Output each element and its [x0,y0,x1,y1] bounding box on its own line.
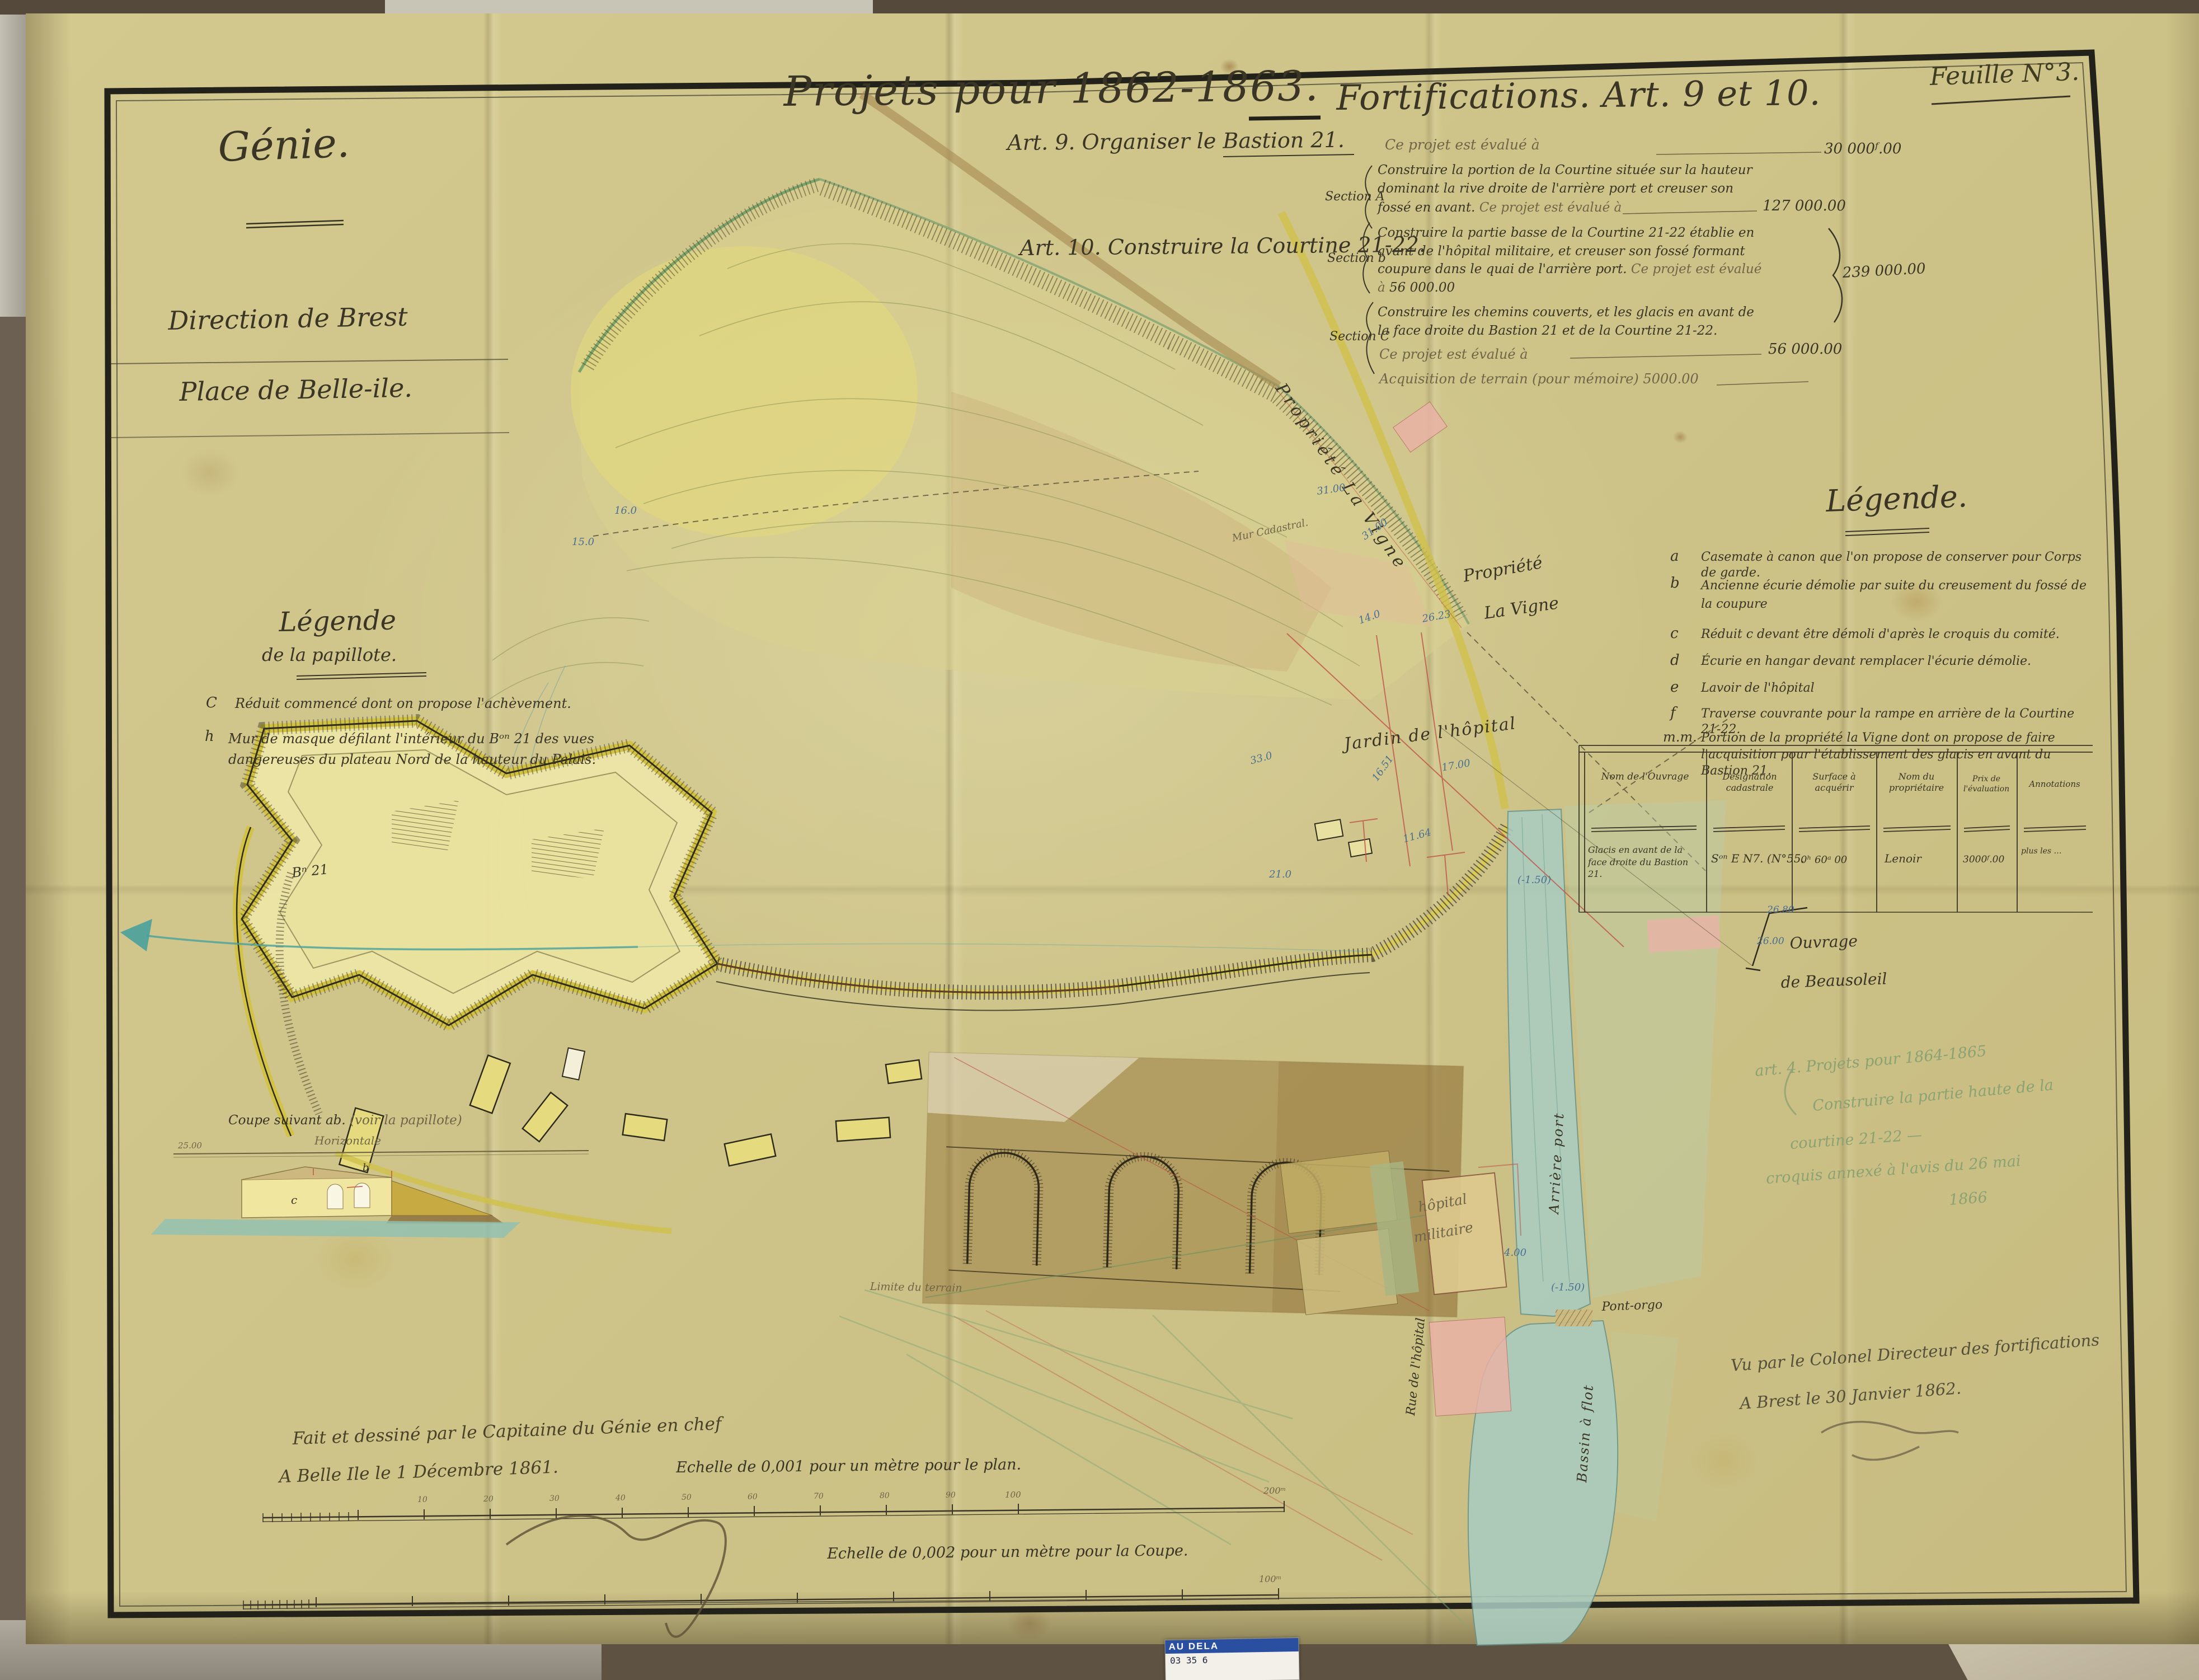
section-c-eval: Ce projet est évalué à [1379,346,1528,363]
spot-height: 26.80 [1767,904,1794,916]
map-label-ouvrage2: de Beausoleil [1780,969,1887,992]
spot-height: 15.0 [572,536,594,549]
papillote-key: h [205,728,214,746]
scale-tick: 200ᵐ [1263,1485,1286,1496]
art9-eval: Ce projet est évalué à [1385,136,1540,153]
section-a-eval: Ce projet est évalué à [1479,200,1622,215]
table-cell: Lenoir [1885,852,1921,866]
spot-height: (-1.50) [1517,874,1551,887]
section-a-text: Construire la portion de la Courtine sit… [1378,161,1764,217]
legend-key: e [1670,678,1679,697]
scale-tick: 100 [1005,1490,1021,1500]
papillote-legend-subtitle: de la papillote. [262,644,397,666]
coupe-title-paren: (voir la papillote) [350,1113,462,1128]
coupe-title-main: Coupe suivant ab. [228,1113,346,1128]
table-cell: plus les … [2021,846,2091,856]
papillote-item: Réduit commencé dont on propose l'achève… [235,695,593,712]
scale-tick: 90 [946,1491,956,1501]
scale-tick: 40 [615,1494,626,1504]
spot-height: 21.0 [1269,869,1291,881]
legend-item: Casemate à canon que l'on propose de con… [1701,550,2093,580]
papillote-legend-title: Légende [279,603,396,639]
scale-tick: 80 [880,1491,890,1501]
table-cell: Sᵒⁿ E N7. (N°55. [1711,852,1805,866]
scale-coupe-text: Echelle de 0,002 pour un mètre pour la C… [827,1541,1188,1563]
org-place: Place de Belle-ile. [179,372,412,409]
spot-height: (-1.50) [1551,1282,1585,1294]
spot-height: 4.00 [1504,1247,1526,1260]
org-title: Génie. [217,118,350,172]
acquisition-line: Acquisition de terrain (pour mémoire) 50… [1379,370,1699,387]
table-header: Prix de l'évaluation [1960,775,2013,794]
legend-item: Lavoir de l'hôpital [1701,681,2093,696]
art9-label: Art. 9. Organiser le Bastion 21. [1007,127,1345,157]
scale-tick: 30 [549,1494,560,1504]
scale-tick: 70 [814,1492,824,1502]
org-direction: Direction de Brest [168,301,408,337]
section-a-name: Section A [1325,189,1385,205]
pencil-note-line: 1866 [1948,1188,1988,1209]
section-c-body: Construire les chemins couverts, et les … [1378,305,1754,338]
scale-tick: 60 [748,1493,758,1503]
legend-item: Réduit c devant être démoli d'après le c… [1701,627,2093,642]
scale-end-coupe: 100ᵐ [1259,1574,1281,1585]
legend-key: a [1670,547,1679,566]
papillote-item: Mur de masque défilant l'intérieur du Bᵒ… [228,729,598,770]
table-header: Nom du propriétaire [1880,771,1953,794]
spot-height: 26.00 [1757,936,1784,947]
section-b-text: Construire la partie basse de la Courtin… [1378,224,1764,297]
main-title-left: Projets pour 1862-1863. [783,60,1319,118]
coupe-title: Coupe suivant ab. (voir la papillote) [228,1113,462,1129]
table-header: Surface à acquérir [1796,771,1872,794]
scale-plan-text: Echelle de 0,001 pour un mètre pour le p… [676,1456,1021,1477]
table-cell: Glacis en avant de la face droite du Bas… [1588,844,1703,880]
legend-title: Légende. [1825,477,1968,520]
scale-tick: 10 [417,1495,427,1505]
coupe-axis-label: Horizontale [314,1134,381,1148]
legend-key: b [1670,574,1680,593]
sticker-number: 03 35 6 [1166,1651,1299,1668]
legend-key: d [1670,651,1680,670]
table-header: Nom de l'Ouvrage [1589,771,1701,783]
legend-key: m.m. [1663,729,1697,745]
legend-item: Écurie en hangar devant remplacer l'écur… [1701,654,2093,669]
spot-height: 16.0 [614,505,637,518]
scale-tick: 20 [483,1495,494,1505]
table-header: Annotations [2021,779,2088,790]
art9-amount: 30 000ᶠ.00 [1824,140,1901,158]
map-label-pont: Pont-orgo [1601,1297,1663,1315]
archive-sticker: AU DELA 03 35 6 [1164,1637,1299,1680]
coupe-letter-b: b [363,1162,369,1175]
legend-key: f [1670,704,1676,722]
section-c-text: Construire les chemins couverts, et les … [1378,303,1764,341]
main-title-right: Fortifications. Art. 9 et 10. [1336,71,1821,120]
section-c-amount: 56 000.00 [1768,340,1842,359]
coupe-ref: 25.00 [178,1141,202,1151]
section-a-amount: 127 000.00 [1763,197,1846,215]
scale-tick: 50 [682,1493,692,1503]
table-header: Désignation cadastrale [1711,771,1788,794]
table-cell: 0ʰ 60ᵃ 00 [1801,854,1847,867]
section-b-amount: 56 000.00 [1389,280,1455,295]
coupe-letter-c: c [291,1193,297,1207]
legend-key: c [1670,625,1679,643]
signature-scrawl-captain [506,1516,726,1637]
sheet-number: Feuille N°3. [1929,57,2080,92]
papillote-key: C [206,694,217,712]
map-label-limite: Limite du terrain [870,1280,962,1296]
photo-background: Feuille N°3. Génie. Direction de Brest P… [0,0,2199,1680]
legend-item: Ancienne écurie démolie par suite du cre… [1701,576,2093,613]
table-cell: 3000ᶠ.00 [1963,854,2004,866]
bastion-21 [237,721,717,1136]
map-label-ouvrage1: Ouvrage [1789,931,1858,953]
signature-scrawl-colonel [1821,1422,1958,1460]
